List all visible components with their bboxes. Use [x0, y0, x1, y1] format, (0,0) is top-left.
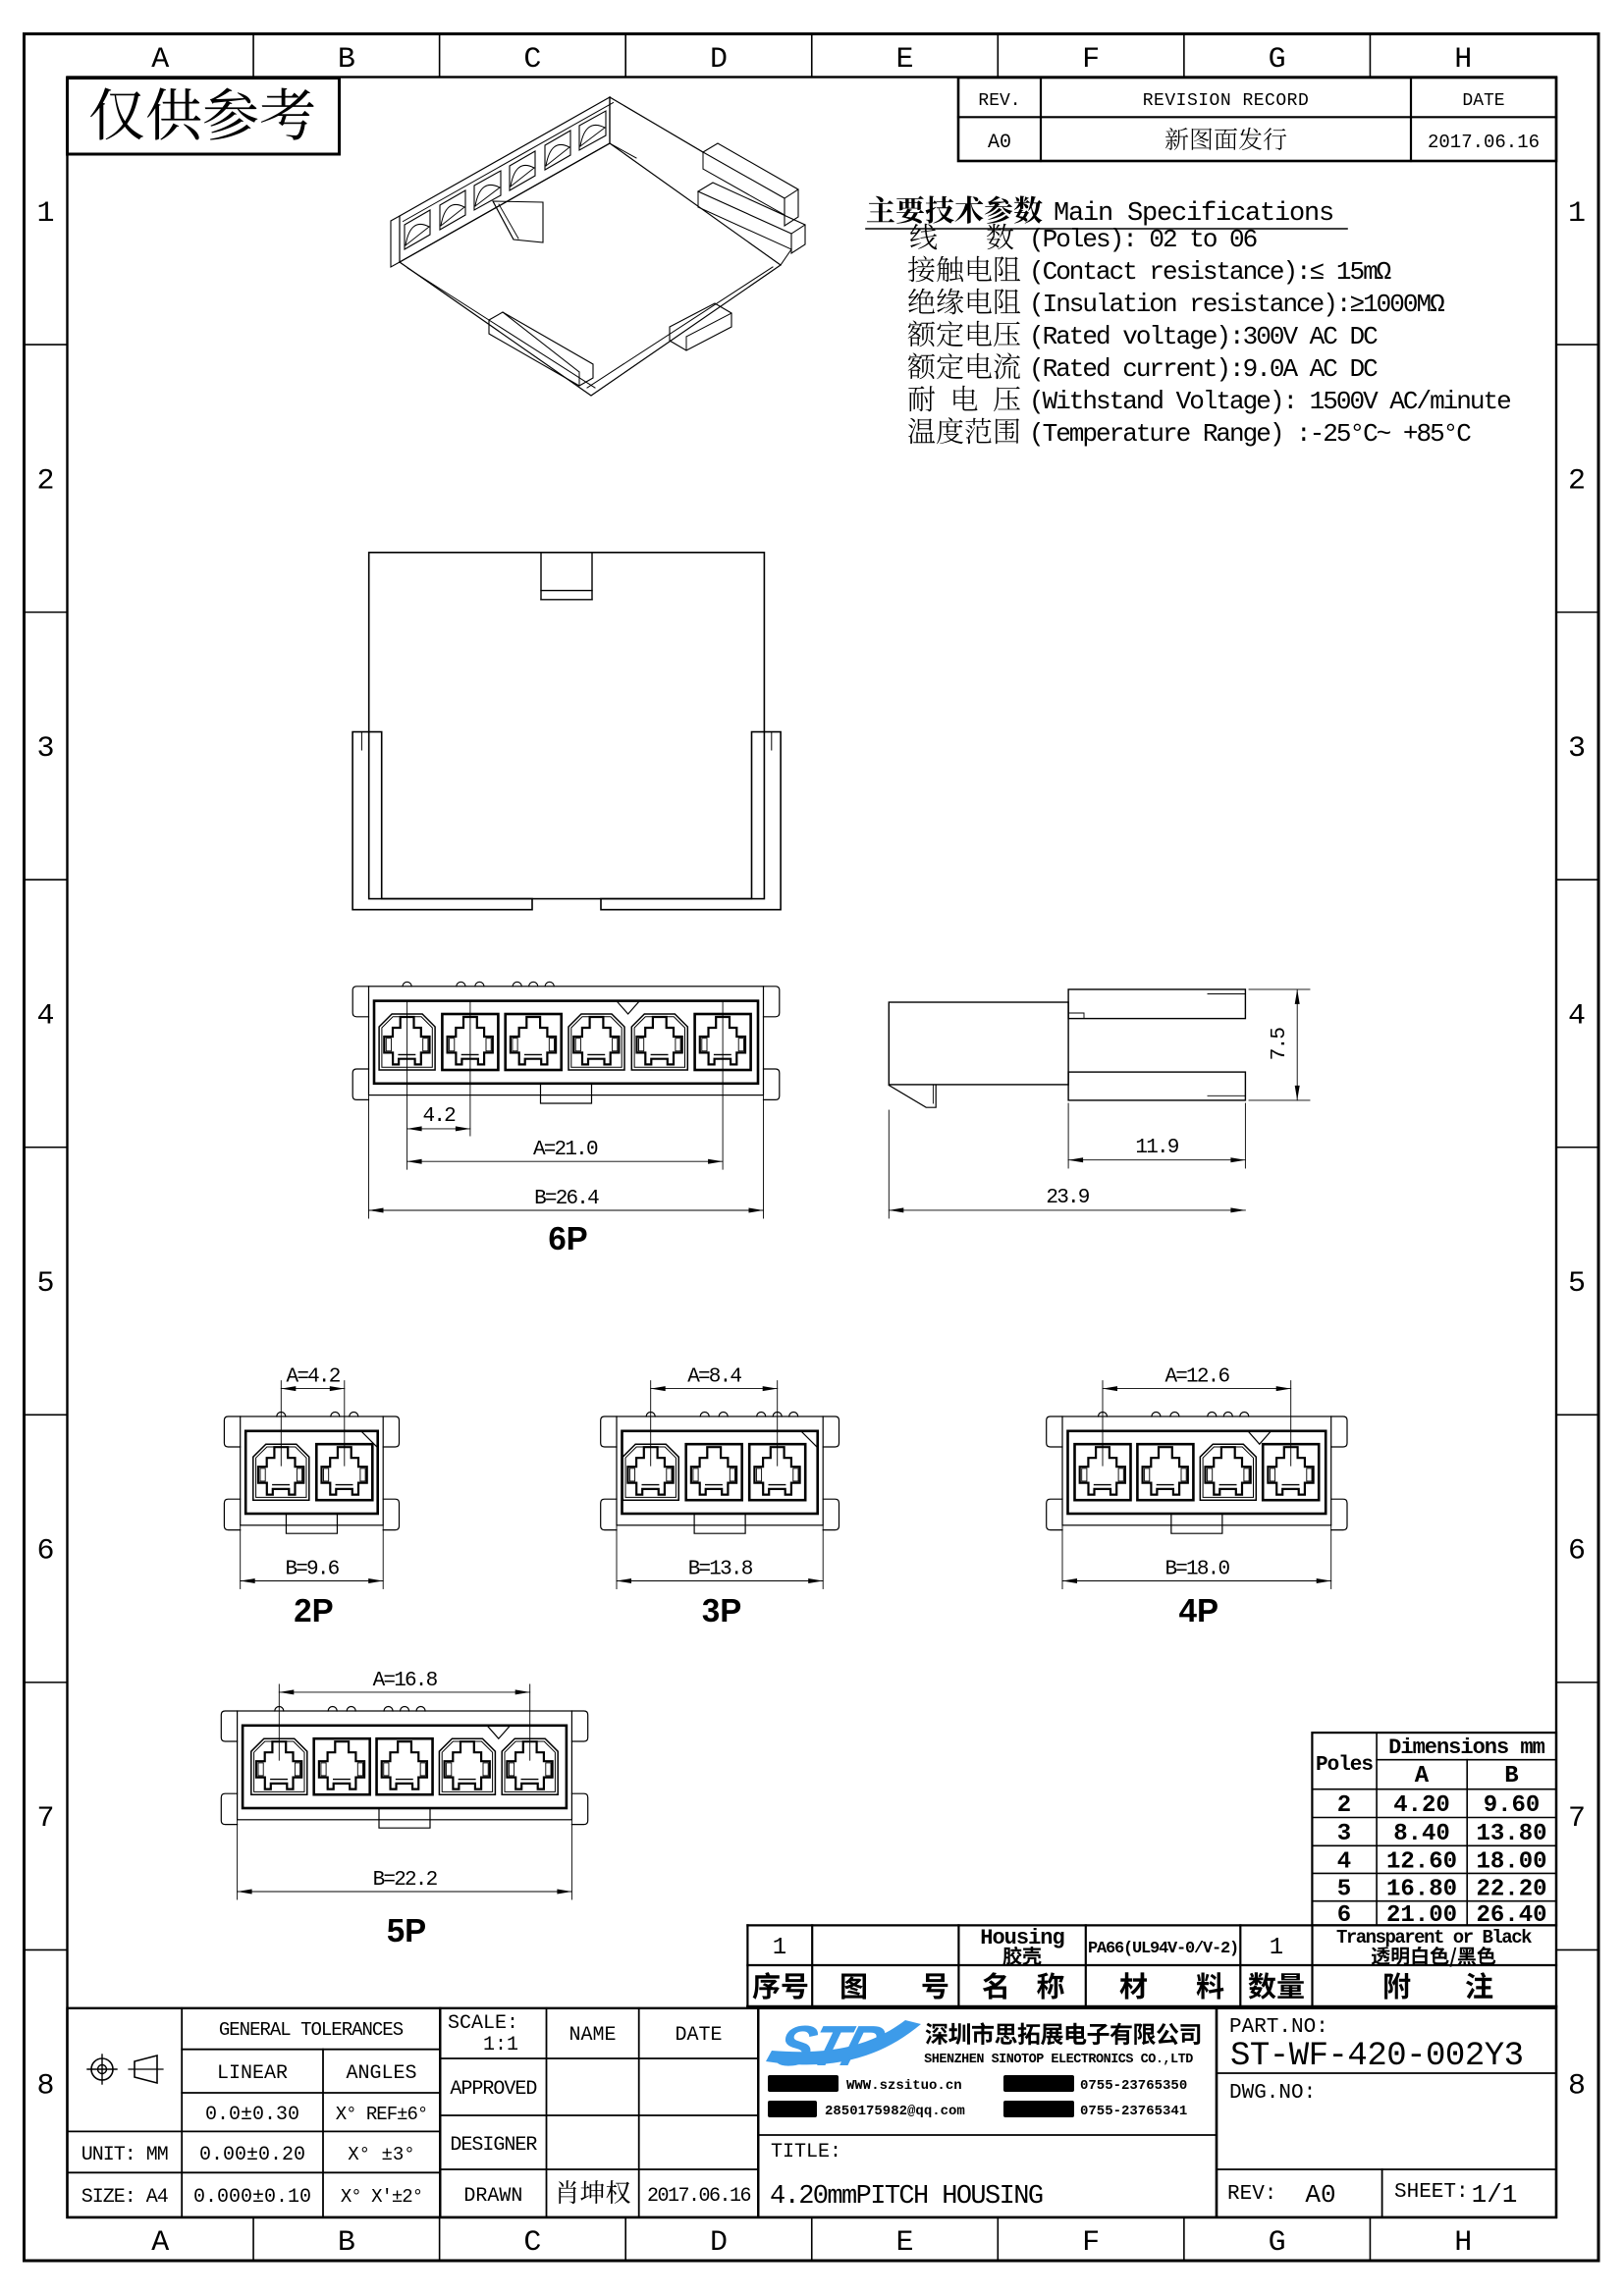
svg-text:(Insulation resistance):≥1000M: (Insulation resistance):≥1000MΩ: [1029, 290, 1444, 319]
svg-text:1: 1: [36, 197, 54, 231]
svg-text:0755-23765341: 0755-23765341: [1080, 2104, 1187, 2119]
svg-text:2017.06.16: 2017.06.16: [1428, 132, 1540, 153]
svg-text:LINEAR: LINEAR: [217, 2062, 288, 2085]
svg-text:4: 4: [1337, 1848, 1351, 1875]
svg-text:G: G: [1269, 43, 1286, 77]
svg-text:A=4.2: A=4.2: [287, 1366, 341, 1389]
svg-text:A: A: [1415, 1763, 1430, 1789]
svg-text:1: 1: [1270, 1935, 1283, 1961]
svg-text:NAME: NAME: [568, 2024, 616, 2047]
svg-text:REV.: REV.: [978, 91, 1020, 111]
svg-text:7: 7: [1568, 1802, 1586, 1836]
svg-text:F: F: [1082, 43, 1100, 77]
svg-text:Poles: Poles: [1316, 1754, 1373, 1777]
svg-text:16.80: 16.80: [1386, 1877, 1457, 1903]
svg-text:7.5: 7.5: [1269, 1028, 1291, 1061]
svg-text:SHENZHEN SINOTOP ELECTRONICS C: SHENZHEN SINOTOP ELECTRONICS CO.,LTD: [924, 2053, 1193, 2067]
svg-text:SIZE: A4: SIZE: A4: [81, 2186, 168, 2209]
svg-text:A: A: [151, 2226, 169, 2260]
svg-text:(Rated current):9.0A AC DC: (Rated current):9.0A AC DC: [1029, 354, 1378, 384]
svg-text:D: D: [710, 2226, 728, 2260]
svg-text:6: 6: [1568, 1535, 1586, 1569]
svg-text:ST-WF-420-002Y3: ST-WF-420-002Y3: [1230, 2038, 1524, 2075]
svg-text:(Withstand Voltage): 1500V AC/: (Withstand Voltage): 1500V AC/minute: [1029, 387, 1510, 416]
svg-text:4: 4: [1568, 999, 1586, 1033]
svg-text:11.9: 11.9: [1135, 1137, 1178, 1159]
svg-text:C: C: [523, 2226, 541, 2260]
svg-text:G: G: [1269, 2226, 1286, 2260]
svg-text:2017.06.16: 2017.06.16: [647, 2185, 751, 2208]
svg-text:4.2: 4.2: [423, 1105, 457, 1128]
svg-text:E: E: [896, 2226, 914, 2260]
svg-text:A0: A0: [988, 132, 1011, 154]
svg-text:4.20: 4.20: [1393, 1792, 1450, 1819]
svg-text:TITLE:: TITLE:: [771, 2141, 841, 2163]
svg-text:2850175982@qq.com: 2850175982@qq.com: [825, 2104, 965, 2119]
svg-text:4P: 4P: [1179, 1592, 1218, 1629]
svg-text:F: F: [1082, 2226, 1100, 2260]
svg-text:B: B: [1504, 1763, 1518, 1789]
svg-text:DATE: DATE: [1462, 91, 1504, 111]
svg-text:4: 4: [36, 999, 54, 1033]
svg-text:1: 1: [773, 1935, 786, 1961]
svg-text:(Rated voltage):300V AC DC: (Rated voltage):300V AC DC: [1029, 322, 1378, 351]
svg-text:B=18.0: B=18.0: [1164, 1559, 1229, 1581]
svg-text:REV:: REV:: [1227, 2183, 1276, 2206]
svg-text:DATE: DATE: [675, 2024, 722, 2047]
svg-text:3: 3: [1337, 1821, 1351, 1847]
svg-text:2: 2: [1337, 1792, 1351, 1819]
svg-text:12.60: 12.60: [1386, 1848, 1457, 1875]
svg-text:8: 8: [1568, 2070, 1586, 2104]
svg-text:0.00±0.20: 0.00±0.20: [199, 2144, 305, 2166]
svg-text:7: 7: [36, 1802, 54, 1836]
svg-text:(Poles): 02 to 06: (Poles): 02 to 06: [1029, 225, 1257, 254]
svg-text:3: 3: [1568, 732, 1586, 766]
svg-text:2: 2: [1568, 464, 1586, 498]
svg-text:X° ±3°: X° ±3°: [348, 2144, 414, 2165]
svg-text:1:1: 1:1: [483, 2034, 518, 2056]
svg-text:GENERAL TOLERANCES: GENERAL TOLERANCES: [219, 2019, 404, 2041]
svg-text:APPROVED: APPROVED: [450, 2078, 536, 2101]
svg-text:0.0±0.30: 0.0±0.30: [205, 2104, 299, 2126]
svg-text:4.20mmPITCH HOUSING: 4.20mmPITCH HOUSING: [770, 2182, 1043, 2212]
svg-text:5: 5: [1337, 1877, 1351, 1903]
svg-text:9.60: 9.60: [1484, 1792, 1541, 1819]
svg-text:E: E: [896, 43, 914, 77]
svg-text:REVISION RECORD: REVISION RECORD: [1143, 91, 1310, 111]
svg-text:5: 5: [1568, 1267, 1586, 1301]
svg-text:6P: 6P: [548, 1220, 587, 1256]
svg-text:DWG.NO:: DWG.NO:: [1229, 2082, 1316, 2105]
svg-text:SHEET:: SHEET:: [1394, 2181, 1469, 2204]
svg-text:B=9.6: B=9.6: [285, 1559, 339, 1581]
svg-text:8.40: 8.40: [1393, 1821, 1450, 1847]
svg-text:Dimensions mm: Dimensions mm: [1388, 1735, 1544, 1760]
svg-text:PART.NO:: PART.NO:: [1229, 2016, 1328, 2039]
svg-text:18.00: 18.00: [1476, 1848, 1546, 1875]
svg-text:A=8.4: A=8.4: [687, 1366, 741, 1389]
svg-text:PA66(UL94V-0/V-2): PA66(UL94V-0/V-2): [1088, 1940, 1238, 1958]
svg-text:B=13.8: B=13.8: [688, 1559, 753, 1581]
svg-text:B: B: [338, 2226, 355, 2260]
svg-text:0.000±0.10: 0.000±0.10: [193, 2186, 311, 2209]
svg-text:Housing: Housing: [980, 1926, 1063, 1950]
svg-text:A=12.6: A=12.6: [1164, 1366, 1229, 1389]
svg-text:8: 8: [36, 2070, 54, 2104]
svg-text:DESIGNER: DESIGNER: [450, 2134, 537, 2157]
svg-text:UNIT: MM: UNIT: MM: [81, 2144, 168, 2166]
svg-text:A=16.8: A=16.8: [373, 1670, 438, 1692]
svg-text:DRAWN: DRAWN: [463, 2185, 522, 2208]
svg-text:WWW.szsituo.cn: WWW.szsituo.cn: [846, 2078, 962, 2094]
svg-text:H: H: [1454, 43, 1472, 77]
svg-text:2P: 2P: [294, 1592, 333, 1629]
svg-text:1/1: 1/1: [1472, 2180, 1518, 2210]
svg-text:2: 2: [36, 464, 54, 498]
svg-text:H: H: [1454, 2226, 1472, 2260]
svg-text:(Contact resistance):≤ 15mΩ: (Contact resistance):≤ 15mΩ: [1029, 257, 1391, 287]
svg-text:13.80: 13.80: [1476, 1821, 1546, 1847]
svg-text:B=22.2: B=22.2: [373, 1869, 438, 1892]
svg-text:A=21.0: A=21.0: [533, 1139, 598, 1161]
svg-text:ANGLES: ANGLES: [346, 2062, 416, 2085]
svg-text:A0: A0: [1305, 2180, 1335, 2210]
svg-text:X° REF±6°: X° REF±6°: [336, 2104, 428, 2125]
svg-text:(Temperature Range) :-25°C~ +8: (Temperature Range) :-25°C~ +85°C: [1029, 419, 1471, 449]
svg-text:SCALE:: SCALE:: [448, 2012, 518, 2035]
svg-text:A: A: [151, 43, 169, 77]
svg-text:3P: 3P: [702, 1592, 741, 1629]
svg-text:6: 6: [36, 1535, 54, 1569]
svg-text:Transparent or Black: Transparent or Black: [1336, 1927, 1532, 1949]
svg-text:5: 5: [36, 1267, 54, 1301]
svg-text:B: B: [338, 43, 355, 77]
svg-text:D: D: [710, 43, 728, 77]
svg-text:22.20: 22.20: [1476, 1877, 1546, 1903]
svg-text:1: 1: [1568, 197, 1586, 231]
svg-text:X° X'±2°: X° X'±2°: [341, 2186, 422, 2208]
svg-text:C: C: [523, 43, 541, 77]
svg-text:0755-23765350: 0755-23765350: [1080, 2078, 1187, 2094]
svg-text:5P: 5P: [387, 1912, 426, 1949]
svg-text:3: 3: [36, 732, 54, 766]
svg-text:B=26.4: B=26.4: [534, 1188, 599, 1210]
svg-text:23.9: 23.9: [1046, 1187, 1089, 1209]
